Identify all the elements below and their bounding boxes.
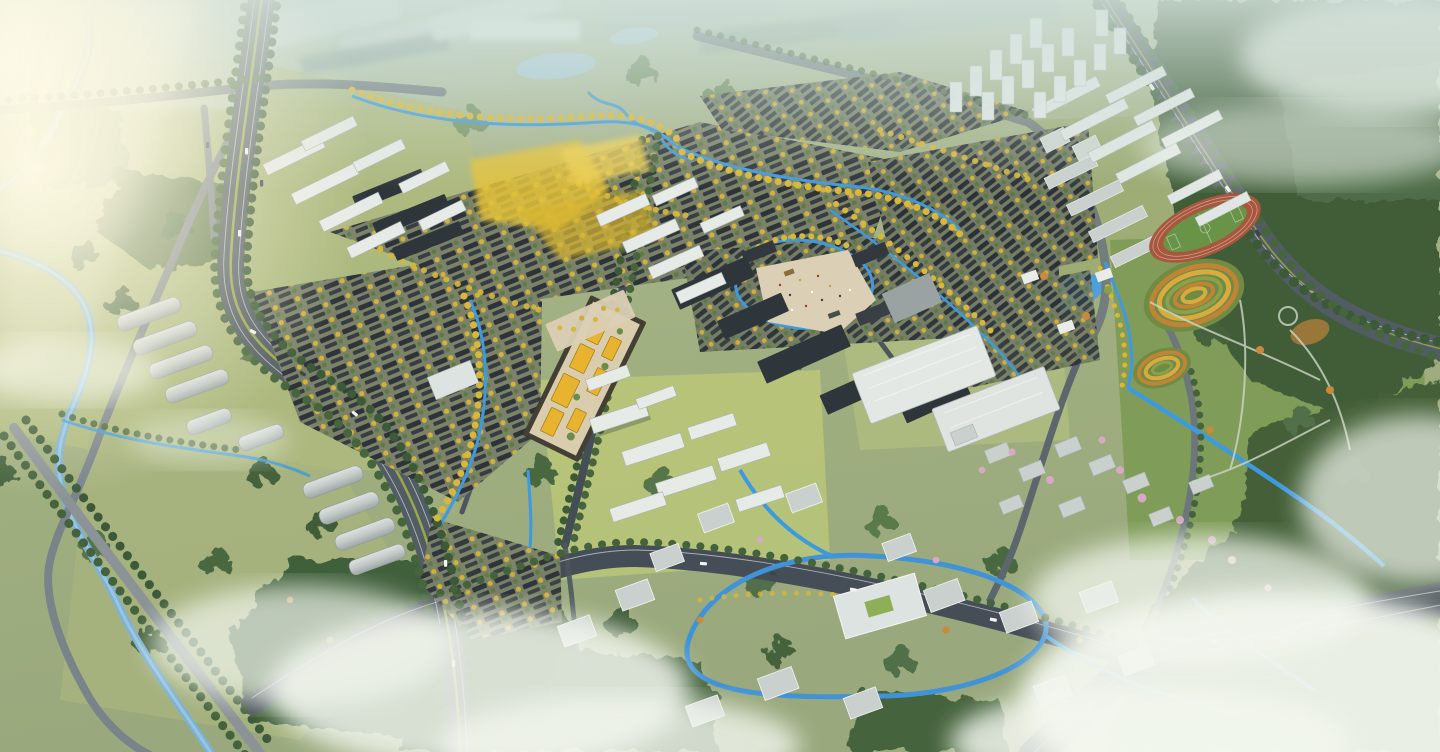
aerial-masterplan-rendering bbox=[0, 0, 1440, 752]
rendering-canvas bbox=[0, 0, 1440, 752]
